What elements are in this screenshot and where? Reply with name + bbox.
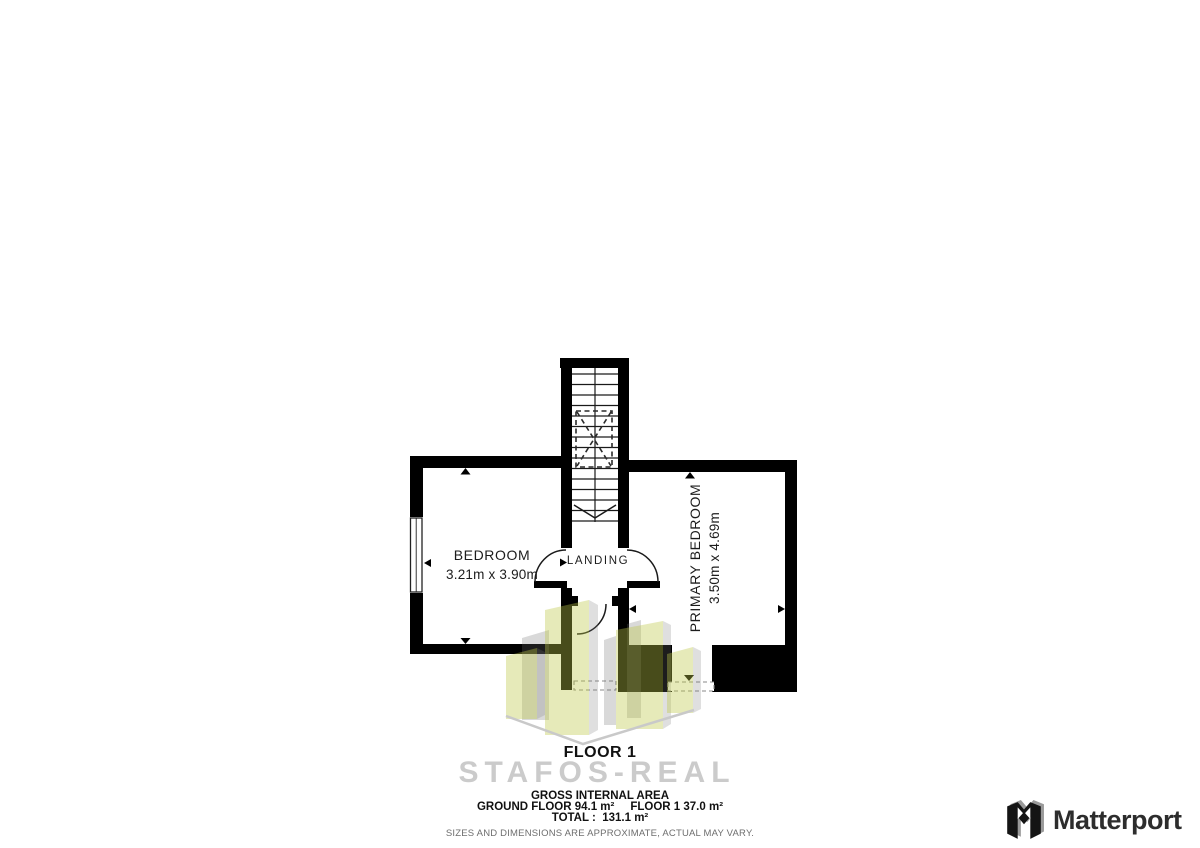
bedroom-top-wall <box>410 456 572 468</box>
stairwell-right-wall <box>618 358 629 548</box>
primary-bedroom-dimensions: 3.50m x 4.69m <box>705 458 725 658</box>
floor-plan-drawing <box>0 0 1200 848</box>
matterport-logo: Matterport <box>1003 797 1193 843</box>
watermark-buildings-icon <box>506 600 701 744</box>
matterport-m-icon <box>1003 799 1045 841</box>
arrow-down-icon <box>461 638 471 644</box>
landing-label: LANDING <box>548 555 648 567</box>
door-jamb-right <box>612 596 618 606</box>
primary-bedroom-label: PRIMARY BEDROOM 3.50m x 4.69m <box>685 458 727 658</box>
right-door-leaf <box>627 581 660 588</box>
bedroom-dimensions: 3.21m x 3.90m <box>412 565 572 585</box>
primary-bedroom-name: PRIMARY BEDROOM <box>685 458 705 658</box>
arrow-right-icon <box>778 605 785 613</box>
matterport-wordmark: Matterport <box>1053 805 1182 836</box>
floorplan-page: BEDROOM 3.21m x 3.90m LANDING PRIMARY BE… <box>0 0 1200 848</box>
arrow-up-icon <box>461 468 471 475</box>
staircase <box>572 368 618 522</box>
stairwell-left-wall <box>561 358 572 548</box>
arrow-left-icon <box>629 605 636 613</box>
walls <box>410 358 797 692</box>
watermark-brand-text: STAFOS-REAL <box>0 756 1194 790</box>
